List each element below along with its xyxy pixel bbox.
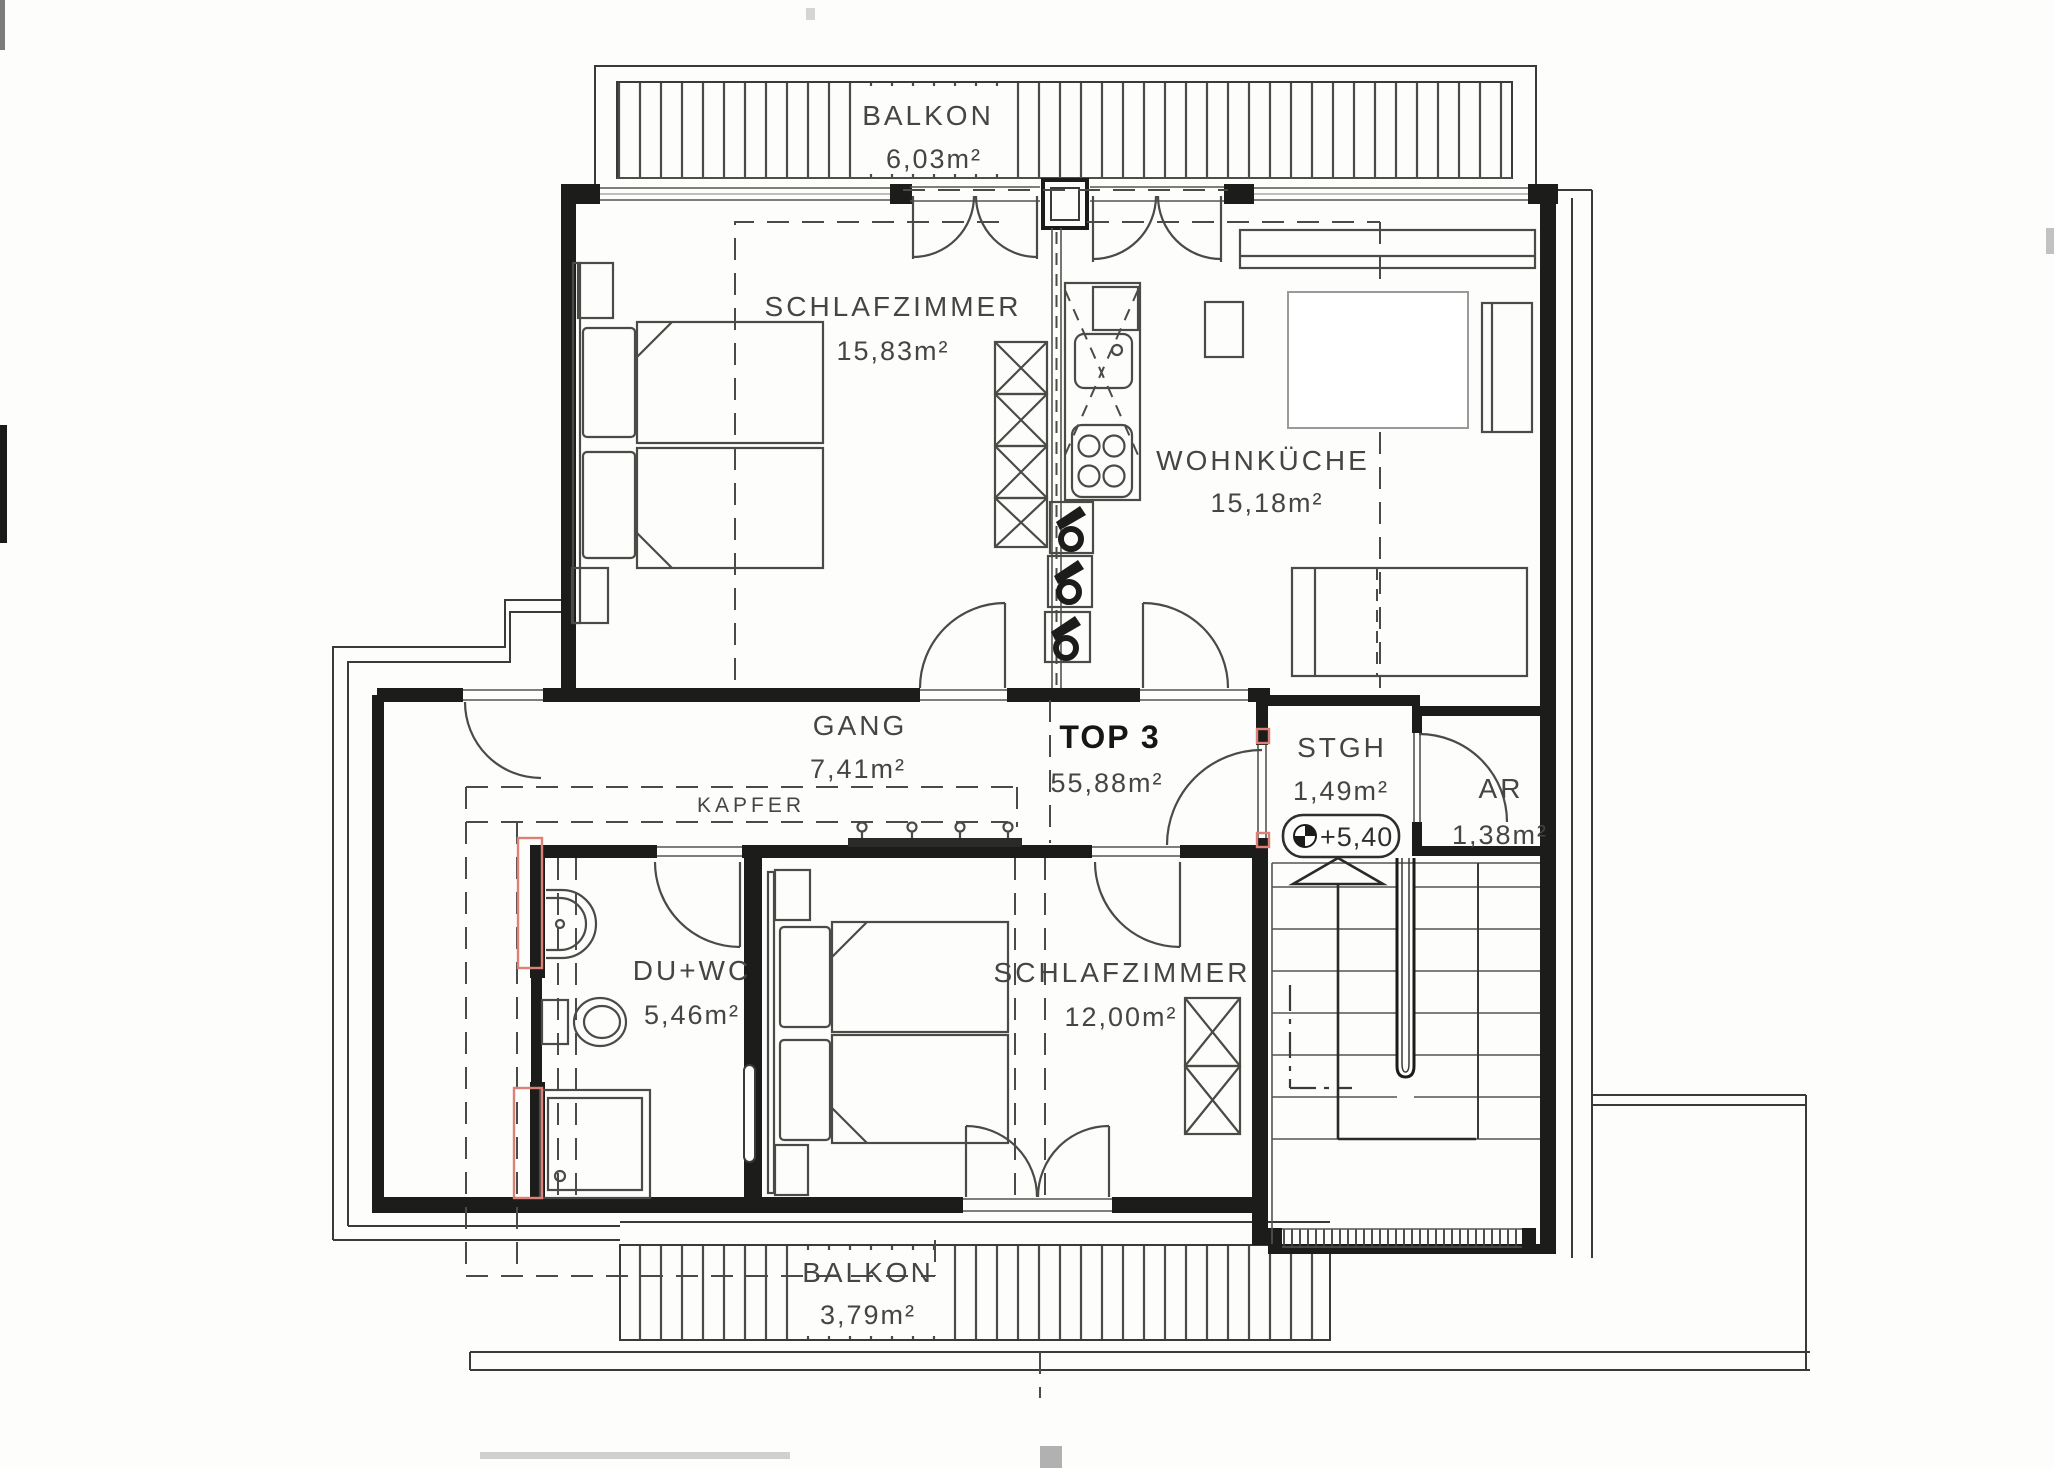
room-area-schlafzimmer-1: 15,83m² [836,336,949,366]
bathroom-window [531,976,542,1084]
pillow [583,328,635,437]
corridor-coat-rack [848,823,1022,848]
drainboard [1093,287,1138,330]
stair-spine [1397,858,1414,1077]
towel-radiator [744,1065,755,1162]
room-du-wc-fixtures [540,890,755,1198]
kitchen-fixtures [1045,283,1140,662]
room-label-wohnkueche: WOHNKÜCHE [1156,445,1370,476]
staircase [1272,858,1540,1244]
room-label-schlafzimmer-2: SCHLAFZIMMER [994,957,1251,988]
stair-window [1282,1229,1522,1247]
wardrobe [995,342,1047,547]
bench [1240,230,1535,268]
kitchen-partition [1052,228,1061,688]
room-label-ar: AR [1479,773,1524,804]
unit-area: 55,88m² [1050,768,1163,798]
floor-plan-drawing: BALKON 6,03m² SCHLAFZIMMER 15,83m² WOHNK… [0,0,2054,1468]
survey-point-icon [1294,825,1316,847]
room-area-gang: 7,41m² [810,754,906,784]
nightstand [578,263,613,318]
bed [637,448,823,568]
bed [637,322,823,443]
stove [1072,425,1132,497]
room-label-stgh: STGH [1297,732,1387,763]
roof-slope-dashed-lines [466,190,1380,1398]
chair [1205,302,1243,357]
sofa [1292,568,1527,676]
shower [540,1090,650,1198]
room-label-balkon-top: BALKON [862,100,994,131]
room-label-balkon-bottom: BALKON [802,1257,934,1288]
room-area-schlafzimmer-2: 12,00m² [1064,1002,1177,1032]
bed [832,922,1008,1032]
room-label-schlafzimmer-1: SCHLAFZIMMER [765,291,1022,322]
nightstand [572,568,608,623]
wc-cistern [542,1000,568,1044]
elevation-value: +5,40 [1320,822,1393,852]
labels: BALKON 6,03m² SCHLAFZIMMER 15,83m² WOHNK… [633,100,1548,1330]
wardrobe [1185,998,1240,1134]
unit-label: TOP 3 [1059,719,1160,755]
nightstand [775,870,810,920]
bench [1482,303,1532,432]
room-area-stgh: 1,49m² [1293,776,1389,806]
balcony-top [617,82,1512,178]
chimney-pillar [1043,180,1087,228]
kitchen-sink [1075,334,1132,388]
nightstand [775,1145,808,1195]
table [1288,292,1468,428]
pillow [780,927,830,1027]
pillow [780,1040,830,1140]
room-schlafzimmer-2-furniture [768,870,1240,1195]
kapfer-label: KAPFER [697,794,805,817]
room-area-balkon-bottom: 3,79m² [820,1300,916,1330]
room-label-gang: GANG [813,710,907,741]
room-area-du-wc: 5,46m² [644,1000,740,1030]
bed-headboard [768,872,774,1193]
pillow [583,452,635,558]
room-area-ar: 1,38m² [1452,820,1548,850]
room-label-du-wc: DU+WC [633,955,751,986]
floor-plan-scan: BALKON 6,03m² SCHLAFZIMMER 15,83m² WOHNK… [0,0,2054,1468]
sink-drain [1112,345,1122,355]
room-area-balkon-top: 6,03m² [886,144,982,174]
room-area-wohnkueche: 15,18m² [1210,488,1323,518]
balcony-bottom [620,1245,1330,1340]
